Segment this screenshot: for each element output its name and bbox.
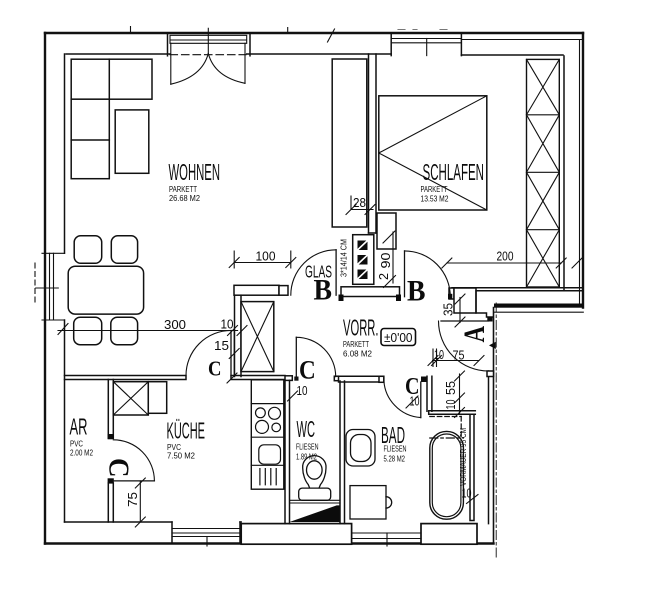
svg-text:B: B xyxy=(314,273,333,306)
svg-text:±0'00: ±0'00 xyxy=(384,331,413,345)
svg-text:WC: WC xyxy=(297,416,316,442)
svg-text:10: 10 xyxy=(443,400,458,410)
svg-text:10: 10 xyxy=(462,486,472,501)
svg-text:C: C xyxy=(299,356,316,385)
svg-text:6.08 M2: 6.08 M2 xyxy=(343,349,372,359)
svg-text:10: 10 xyxy=(434,347,444,362)
svg-text:90: 90 xyxy=(378,253,393,269)
svg-text:5.28 M2: 5.28 M2 xyxy=(384,454,406,464)
svg-text:10: 10 xyxy=(221,317,234,332)
svg-text:2: 2 xyxy=(376,273,391,280)
svg-text:C: C xyxy=(208,357,222,381)
svg-text:VORMAUER 95 CM: VORMAUER 95 CM xyxy=(459,428,468,486)
svg-text:10: 10 xyxy=(297,383,308,398)
svg-text:B: B xyxy=(407,275,426,308)
svg-text:A: A xyxy=(458,326,491,343)
svg-text:FLIESEN: FLIESEN xyxy=(384,444,407,454)
svg-text:SCHLAFEN: SCHLAFEN xyxy=(423,159,485,185)
svg-text:75: 75 xyxy=(453,348,465,363)
svg-text:55: 55 xyxy=(443,381,458,395)
svg-text:PARKETT: PARKETT xyxy=(421,184,448,194)
svg-text:100: 100 xyxy=(256,249,276,264)
svg-text:300: 300 xyxy=(164,317,186,332)
svg-text:KÜCHE: KÜCHE xyxy=(167,417,206,443)
svg-text:FLIESEN: FLIESEN xyxy=(296,442,319,452)
svg-text:26.68 M2: 26.68 M2 xyxy=(169,193,200,203)
svg-text:13.53 M2: 13.53 M2 xyxy=(421,194,449,204)
svg-text:15: 15 xyxy=(214,338,229,353)
svg-text:7.50 M2: 7.50 M2 xyxy=(167,451,195,461)
svg-text:3*14/14 CM: 3*14/14 CM xyxy=(340,239,349,277)
svg-text:10: 10 xyxy=(410,394,420,409)
svg-text:AR: AR xyxy=(70,414,88,440)
svg-text:28: 28 xyxy=(353,195,366,210)
svg-text:PARKETT: PARKETT xyxy=(343,339,369,349)
svg-text:2.00 M2: 2.00 M2 xyxy=(70,448,93,458)
svg-text:C: C xyxy=(103,458,135,478)
svg-text:200: 200 xyxy=(497,249,514,264)
svg-text:WOHNEN: WOHNEN xyxy=(169,159,221,185)
svg-text:1.89 M2: 1.89 M2 xyxy=(296,452,317,462)
svg-text:75: 75 xyxy=(125,492,140,507)
svg-text:VORR.: VORR. xyxy=(343,315,379,341)
svg-text:35: 35 xyxy=(441,303,456,316)
